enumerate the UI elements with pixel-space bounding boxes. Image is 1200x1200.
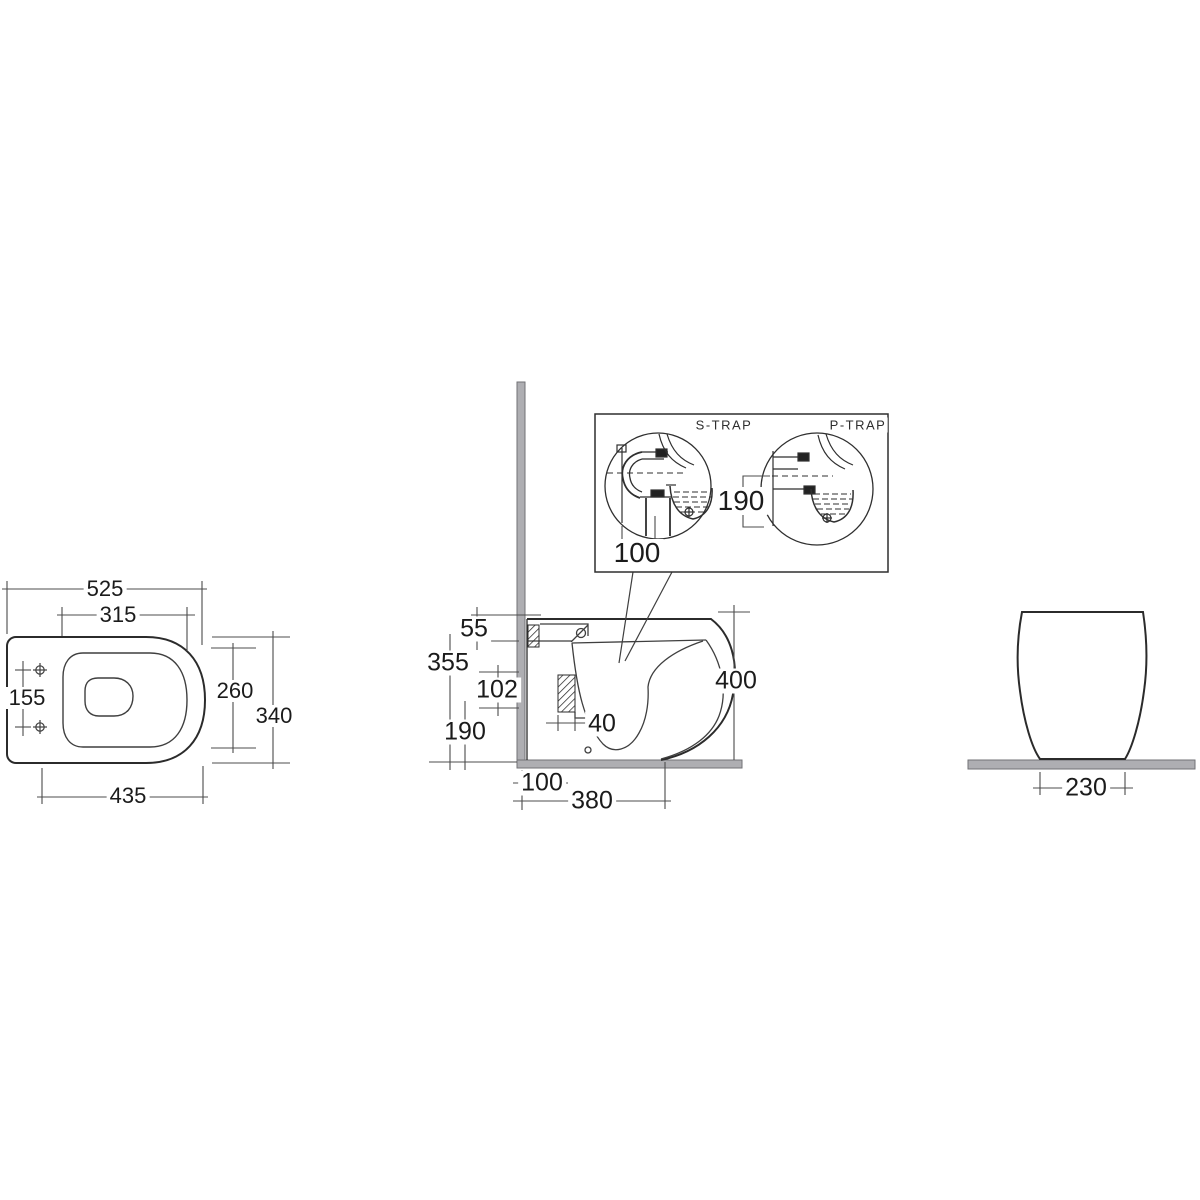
side-pan-interior xyxy=(527,624,723,759)
side-dim-underside-height: 355 xyxy=(424,651,472,676)
drawing-linework xyxy=(0,0,1200,1200)
floor xyxy=(517,760,742,768)
side-outlet-hatch xyxy=(558,675,575,712)
plan-dim-fixing-centres: 155 xyxy=(6,687,49,709)
wall xyxy=(517,382,525,768)
side-dim-outlet-setout: 100 xyxy=(518,771,566,796)
side-dim-overall-height: 400 xyxy=(712,669,760,694)
front-dim-base-width: 230 xyxy=(1062,776,1110,801)
p-trap-caption: P-TRAP xyxy=(829,418,888,433)
inset-dim-s-trap-setout: 100 xyxy=(611,539,664,567)
side-dim-outlet-depth: 40 xyxy=(585,712,619,737)
side-dim-outlet-height: 190 xyxy=(441,720,489,745)
inset-dim-p-trap-height: 190 xyxy=(715,487,768,515)
s-trap-caption: S-TRAP xyxy=(695,418,754,433)
plan-dim-overall-width: 340 xyxy=(253,705,296,727)
plan-dim-cutout-length: 315 xyxy=(97,604,140,626)
side-dim-rim-section: 55 xyxy=(457,617,491,642)
technical-drawing-canvas: 525 315 155 260 340 435 55 355 102 190 4… xyxy=(0,0,1200,1200)
front-pan-outline xyxy=(1018,612,1147,759)
side-fixing-block-hatch xyxy=(528,625,539,647)
inset-leader-lines xyxy=(619,572,672,663)
plan-dim-overall-length: 525 xyxy=(84,578,127,600)
side-dim-base-depth: 380 xyxy=(568,789,616,814)
front-view-drawing xyxy=(968,612,1195,795)
front-floor xyxy=(968,760,1195,769)
side-dim-outlet-spacing: 102 xyxy=(473,678,521,703)
plan-dim-cutout-width: 260 xyxy=(214,680,257,702)
plan-dim-base-length: 435 xyxy=(107,785,150,807)
